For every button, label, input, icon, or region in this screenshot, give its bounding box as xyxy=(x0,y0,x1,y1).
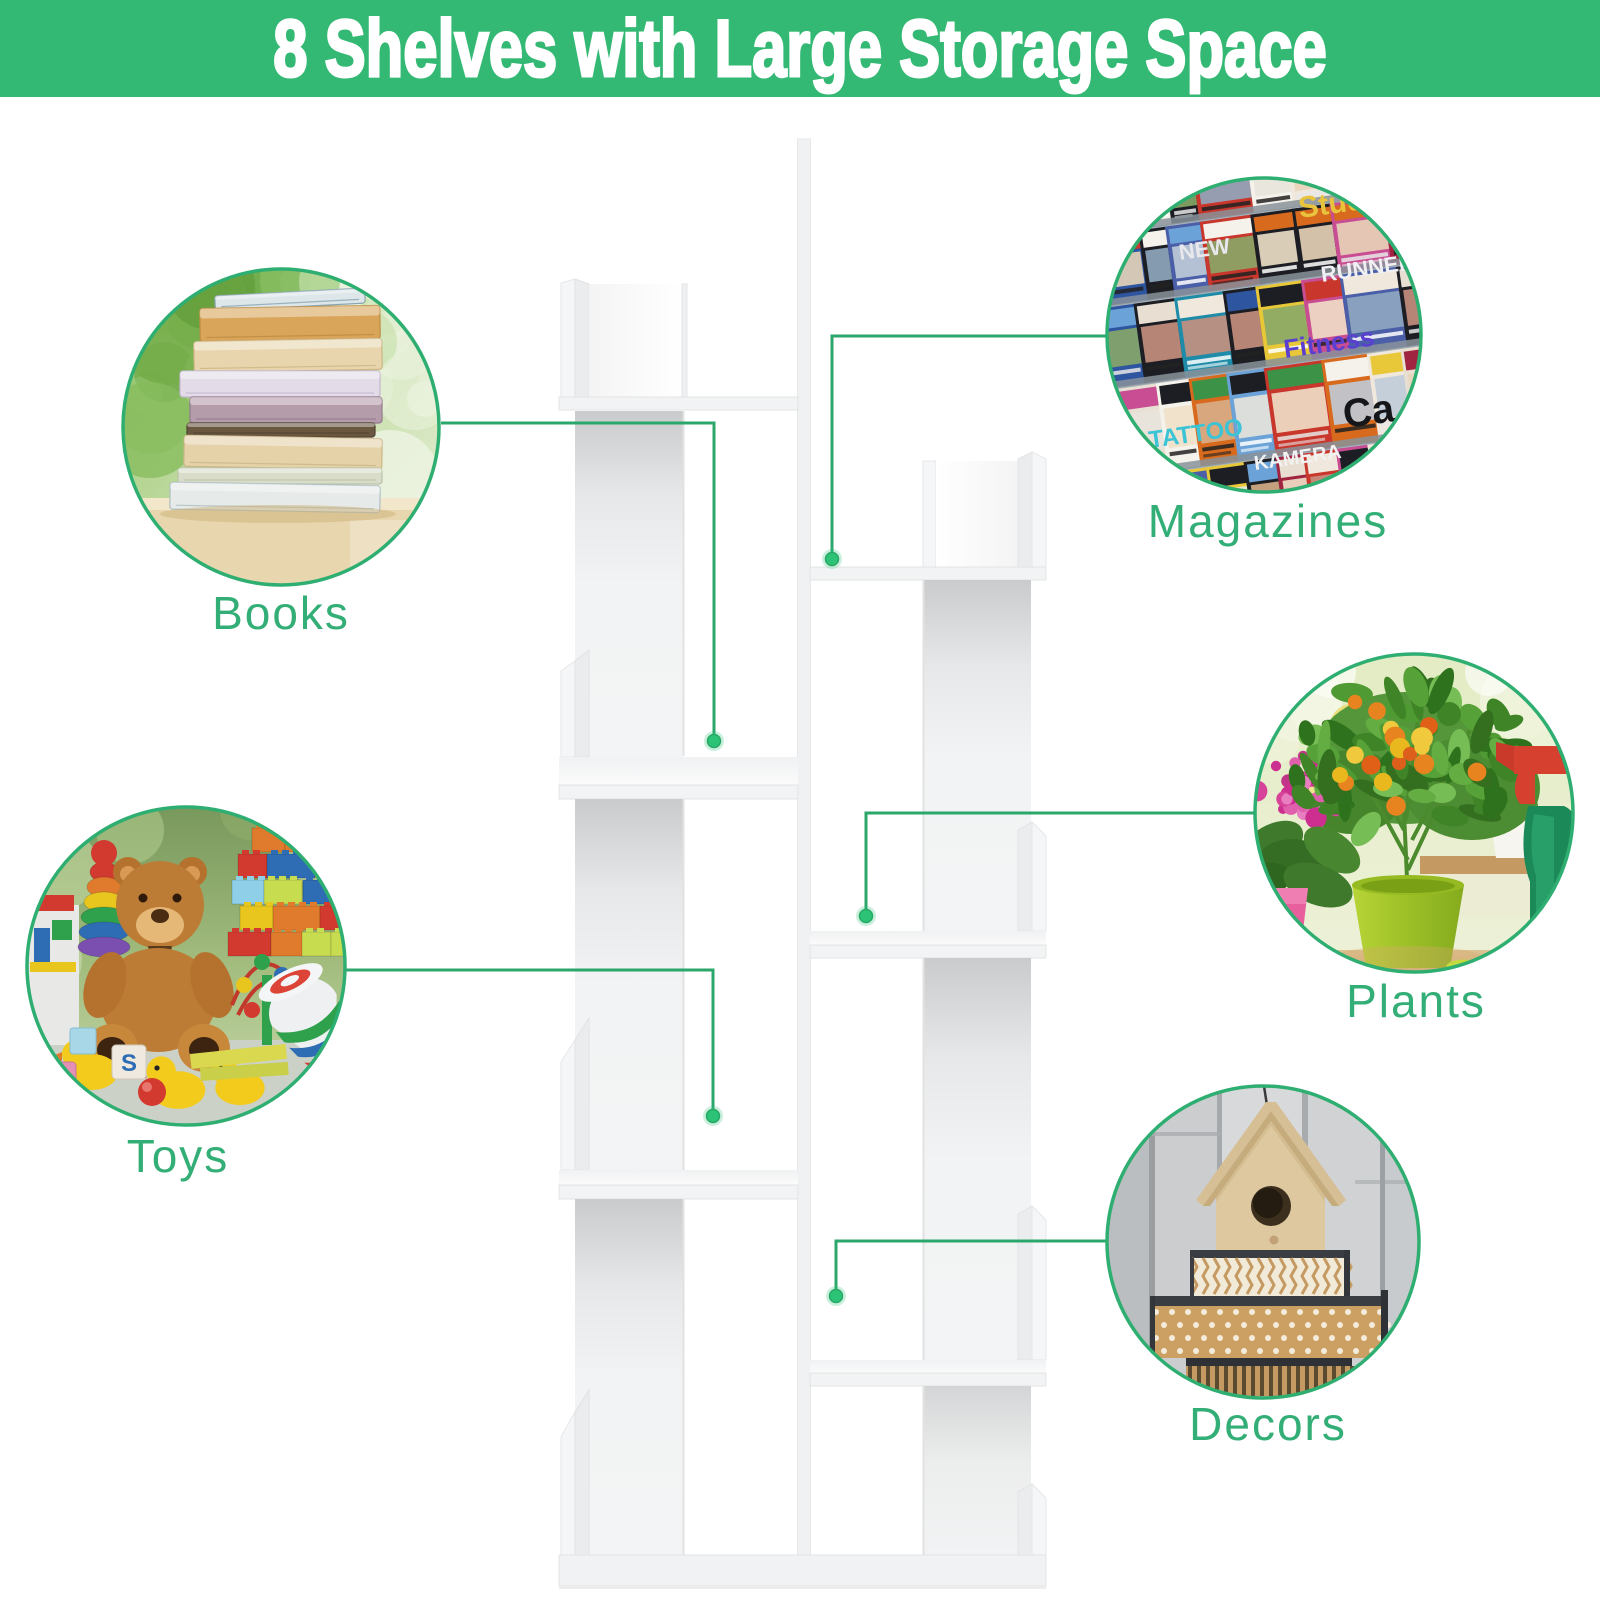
svg-text:8 Shelves with Large Storage S: 8 Shelves with Large Storage Space xyxy=(273,4,1327,94)
svg-text:Magazines: Magazines xyxy=(1148,495,1388,547)
svg-text:Toys: Toys xyxy=(127,1130,230,1182)
svg-text:S: S xyxy=(121,1050,137,1077)
svg-text:Plants: Plants xyxy=(1346,975,1486,1027)
svg-text:Books: Books xyxy=(212,587,350,639)
svg-text:Decors: Decors xyxy=(1189,1398,1347,1450)
